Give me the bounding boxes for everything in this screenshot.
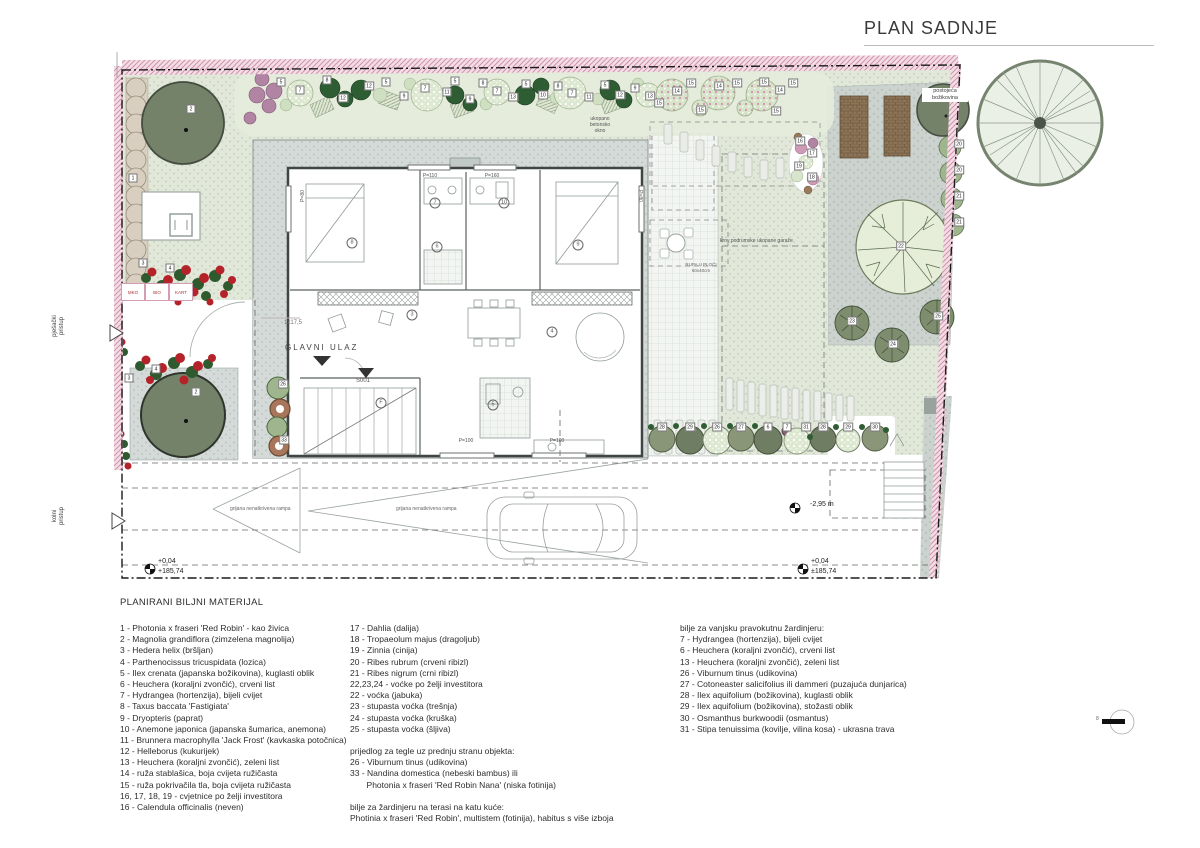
waste-bin-mko: MKO [121, 283, 145, 301]
plant-tag-33: 33 [279, 436, 289, 445]
plant-tag-26: 26 [712, 423, 722, 432]
legend-line: 6 - Heuchera (koraljni zvončić), crveni … [680, 645, 1100, 656]
plant-tag-7: 7 [493, 87, 502, 96]
plant-tag-4: 4 [166, 264, 175, 273]
plant-tag-5: 5 [601, 81, 610, 90]
legend-line: 31 - Stipa tenuissima (kovilje, vilina k… [680, 724, 1100, 735]
door-code-label: S001 [356, 378, 370, 385]
plant-tag-2: 2 [187, 105, 196, 114]
legend-line: 24 - stupasta voćka (kruška) [350, 713, 680, 724]
plant-tag-5: 5 [382, 78, 391, 87]
plant-tag-15: 15 [771, 107, 781, 116]
plant-tag-9: 9 [631, 84, 640, 93]
elev-left-rel: +0,04 [158, 558, 176, 565]
legend-line [350, 735, 680, 746]
legend-line: 21 - Ribes nigrum (crni ribizl) [350, 668, 680, 679]
plant-tag-26: 26 [278, 380, 288, 389]
plant-tag-6: 6 [764, 423, 773, 432]
plant-tag-21: 21 [954, 192, 964, 201]
plant-tag-8: 8 [479, 79, 488, 88]
window-label: P=160 [485, 173, 500, 179]
window-label: P=100 [550, 438, 565, 444]
legend-line: 20 - Ribes rubrum (crveni ribizl) [350, 657, 680, 668]
plant-tag-28: 28 [657, 423, 667, 432]
plant-tag-18: 18 [807, 173, 817, 182]
plant-tag-15: 15 [686, 79, 696, 88]
room-tag-8: 8 [347, 238, 358, 249]
vehicle-access-label: kolni pristup [52, 496, 66, 536]
plant-tag-23: 23 [847, 317, 857, 326]
legend-line: Photonia x fraseri 'Red Robin Nana' (nis… [350, 780, 680, 791]
plant-tag-15: 15 [788, 79, 798, 88]
plant-tag-2: 2 [192, 388, 201, 397]
room-tag-10: 10 [499, 198, 510, 209]
plant-tag-13: 13 [508, 93, 518, 102]
legend-line: 22 - voćka (jabuka) [350, 690, 680, 701]
pedestrian-access-label: pješački pristup [52, 306, 66, 346]
legend-line: 18 - Tropaeolum majus (dragoljub) [350, 634, 680, 645]
legend-line [350, 791, 680, 802]
waste-bin-kart: KART [169, 283, 193, 301]
plant-tag-14: 14 [714, 82, 724, 91]
plant-tag-4: 4 [152, 365, 161, 374]
house-floorplan [286, 165, 644, 458]
legend-line: 25 - stupasta voćka (šljiva) [350, 724, 680, 735]
plant-tag-28: 28 [818, 423, 828, 432]
plant-tag-5: 5 [451, 77, 460, 86]
garden-shed [142, 192, 200, 240]
stair-note-label: 1x17,5 [284, 320, 302, 327]
plant-tag-30: 30 [870, 423, 880, 432]
garage-roof-label: krov podrumske ukopane garaže [720, 238, 830, 244]
window-label: P=80 [637, 190, 643, 202]
plant-tag-12: 12 [364, 82, 374, 91]
slab-hole-label: RUPA U PLOČI 60x40cm [672, 262, 730, 273]
plant-tag-14: 14 [672, 87, 682, 96]
plant-tag-7: 7 [568, 89, 577, 98]
legend-line: prijedlog za tegle uz prednju stranu obj… [350, 746, 680, 757]
plant-tag-5: 5 [277, 78, 286, 87]
plant-tag-31: 31 [801, 423, 811, 432]
terrace-grid [648, 128, 728, 456]
legend-line: 7 - Hydrangea (hortenzija), bijeli cvije… [680, 634, 1100, 645]
plant-tag-7: 7 [296, 86, 305, 95]
plant-tag-3: 3 [139, 259, 148, 268]
plant-tag-11: 11 [584, 93, 593, 102]
plant-tag-20: 20 [954, 166, 964, 175]
legend-line: 19 - Zinnia (cinija) [350, 645, 680, 656]
window-label: P=110 [423, 173, 437, 179]
legend-line: 22,23,24 - voćke po želji investitora [350, 679, 680, 690]
room-tag-6: 6 [432, 242, 443, 253]
waste-bin-bio: BIO [145, 283, 169, 301]
plant-tag-1: 1 [129, 174, 138, 183]
room-tag-3: 3 [407, 310, 418, 321]
plant-tag-8: 8 [554, 82, 563, 91]
plant-tag-11: 11 [442, 88, 451, 97]
ramp-left-label: grijana nenatkrivena rampa [230, 506, 291, 512]
legend-line: bilje za vanjsku pravokutnu žardinjeru: [680, 623, 1100, 634]
plant-tag-15: 15 [654, 99, 664, 108]
plant-tag-9: 9 [466, 95, 475, 104]
elev-right-rel: +0,04 [811, 558, 829, 565]
room-tag-9: 9 [573, 240, 584, 251]
legend-line: bilje za žardinjeru na terasi na katu ku… [350, 802, 680, 813]
plant-tag-7: 7 [421, 84, 430, 93]
planting-plan-sheet: PLAN SADNJE postojeća božikovina ukopano… [0, 0, 1200, 848]
plant-tag-25: 25 [933, 312, 943, 321]
legend-line: 27 - Cotoneaster salicifolius ili dammer… [680, 679, 1100, 690]
plant-tag-12: 12 [615, 91, 625, 100]
page-title: PLAN SADNJE [864, 18, 1154, 46]
ramp-main-label: grijana nenatkrivena rampa [396, 506, 457, 512]
depth-label: -2,95 m [810, 501, 834, 508]
elev-right-abs: ±185,74 [811, 568, 836, 575]
plant-tag-27: 27 [736, 423, 746, 432]
plant-tag-21: 21 [954, 218, 964, 227]
waste-bins: MKOBIOKART [121, 283, 193, 301]
legend-line: 29 - Ilex aquifolium (božikovina), stoža… [680, 701, 1100, 712]
elev-left-abs: +185,74 [158, 568, 184, 575]
legend-line: 26 - Viburnum tinus (udikovina) [350, 757, 680, 768]
plant-tag-3: 3 [125, 374, 134, 383]
legend-line: 17 - Dahlia (dalija) [350, 623, 680, 634]
plant-tag-22: 22 [896, 242, 906, 251]
plant-tag-14: 14 [775, 86, 785, 95]
legend-line: 30 - Osmanthus burkwoodii (osmantus) [680, 713, 1100, 724]
legend-line: 28 - Ilex aquifolium (božikovina), kugla… [680, 690, 1100, 701]
plant-tag-16: 16 [795, 137, 805, 146]
legend-column-3: bilje za vanjsku pravokutnu žardinjeru:7… [680, 623, 1100, 735]
plant-tag-12: 12 [338, 94, 348, 103]
scale-mark-icon [1102, 710, 1134, 734]
plant-tag-15: 15 [732, 79, 742, 88]
plant-tag-8: 8 [323, 76, 332, 85]
plant-tag-9: 9 [400, 92, 409, 101]
main-entrance-label: GLAVNI ULAZ [285, 344, 358, 351]
legend-line: 13 - Heuchera (koraljni zvončić), zeleni… [680, 657, 1100, 668]
room-tag-4: 4 [547, 327, 558, 338]
existing-tree-label: postojeća božikovina [922, 88, 968, 102]
legend-line: Photinia x fraseri 'Red Robin', multiste… [350, 813, 680, 824]
window-label: P=80 [300, 190, 306, 202]
legend-line: 33 - Nandina domestica (nebeski bambus) … [350, 768, 680, 779]
plant-tag-24: 24 [888, 340, 898, 349]
plant-tag-15: 15 [696, 106, 706, 115]
plant-tag-20: 20 [954, 140, 964, 149]
room-tag-F: F [376, 398, 387, 409]
plant-tag-29: 29 [843, 423, 853, 432]
plant-tag-19: 19 [794, 162, 804, 171]
plant-tag-17: 17 [807, 149, 817, 158]
window-label: P=100 [459, 438, 474, 444]
plant-tag-29: 29 [685, 423, 695, 432]
plant-tag-5: 5 [522, 80, 531, 89]
legend-heading: PLANIRANI BILJNI MATERIJAL [120, 597, 263, 608]
room-tag-5: 5 [488, 400, 499, 411]
room-tag-7: 7 [430, 198, 441, 209]
legend-line: 26 - Viburnum tinus (udikovina) [680, 668, 1100, 679]
large-existing-tree [978, 61, 1102, 185]
legend-line: 23 - stupasta voćka (trešnja) [350, 701, 680, 712]
plant-tag-7: 7 [783, 423, 792, 432]
plant-tag-10: 10 [538, 91, 548, 100]
plant-tag-15: 15 [759, 78, 769, 87]
buried-shaft-label: ukopano betonsko okno [570, 116, 630, 134]
legend-column-2: 17 - Dahlia (dalija)18 - Tropaeolum maju… [350, 623, 680, 824]
